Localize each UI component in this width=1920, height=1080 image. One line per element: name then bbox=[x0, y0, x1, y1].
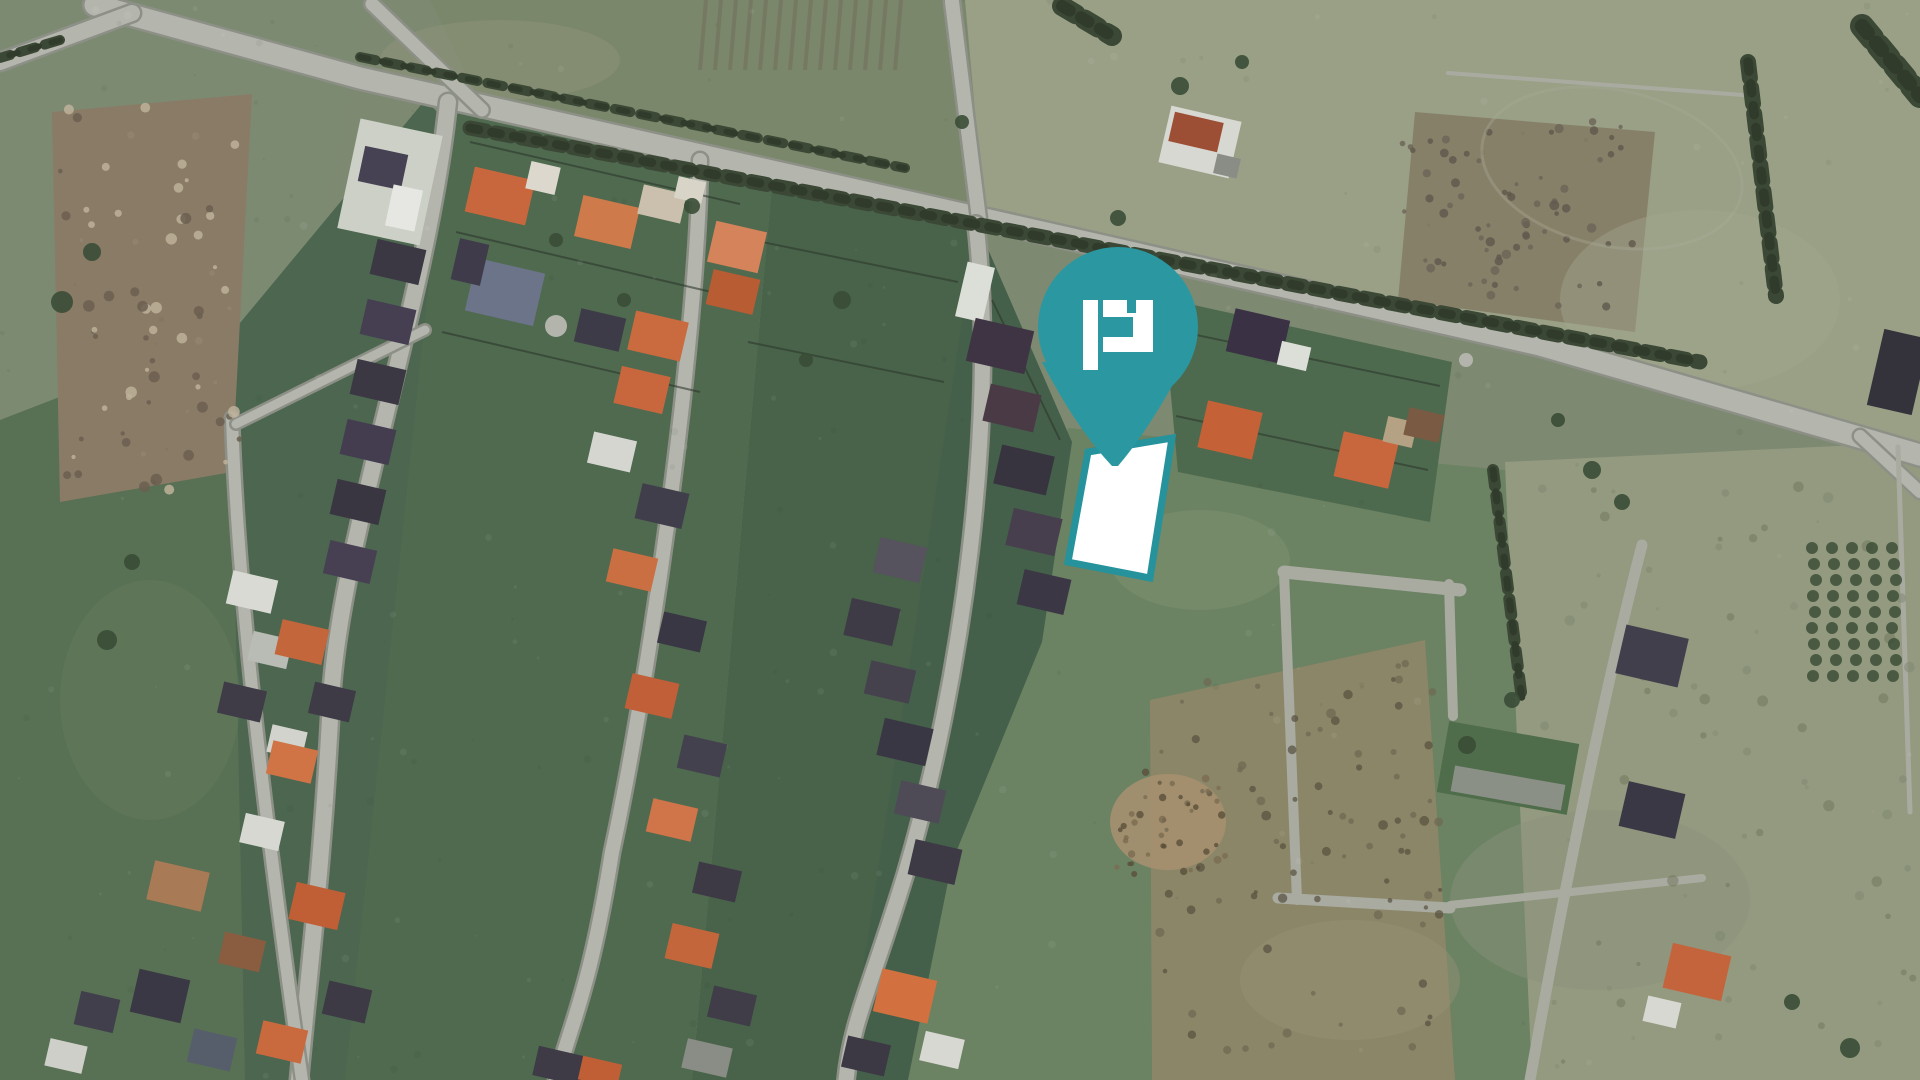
terrain-speckle bbox=[143, 335, 149, 341]
orchard-bush bbox=[1828, 638, 1840, 650]
terrain-speckle bbox=[1283, 1028, 1292, 1037]
terrain-speckle bbox=[840, 117, 845, 122]
terrain-speckle bbox=[1110, 53, 1118, 61]
terrain-speckle bbox=[1756, 829, 1763, 836]
terrain-speckle bbox=[817, 688, 824, 695]
terrain-speckle bbox=[1722, 489, 1730, 497]
p-logo-icon-cutout bbox=[1103, 317, 1133, 337]
terrain-speckle bbox=[1163, 969, 1168, 974]
terrain-speckle bbox=[1344, 192, 1347, 195]
terrain-speckle bbox=[1216, 898, 1222, 904]
terrain-speckle bbox=[0, 331, 5, 336]
terrain-speckle bbox=[1159, 833, 1165, 839]
terrain-speckle bbox=[1502, 250, 1511, 259]
terrain-speckle bbox=[1438, 888, 1442, 892]
terrain-speckle bbox=[632, 1041, 634, 1043]
terrain-speckle bbox=[1700, 694, 1711, 705]
terrain-speckle bbox=[1290, 869, 1297, 876]
terrain-speckle bbox=[1540, 722, 1549, 731]
terrain-speckle bbox=[1521, 1021, 1525, 1025]
terrain-speckle bbox=[400, 748, 407, 755]
orchard-bush bbox=[1827, 590, 1839, 602]
terrain-speckle bbox=[513, 639, 518, 644]
terrain-speckle bbox=[1395, 817, 1401, 823]
terrain-speckle bbox=[314, 1047, 317, 1050]
terrain-speckle bbox=[366, 798, 373, 805]
tree bbox=[51, 291, 73, 313]
terrain-speckle bbox=[1242, 1045, 1249, 1052]
orchard-bush bbox=[1888, 638, 1900, 650]
terrain-speckle bbox=[18, 777, 20, 779]
terrain-speckle bbox=[184, 664, 190, 670]
terrain-speckle bbox=[227, 306, 231, 310]
terrain-speckle bbox=[1486, 223, 1490, 227]
terrain-speckle bbox=[1739, 281, 1743, 285]
terrain-speckle bbox=[1646, 567, 1652, 573]
terrain-speckle bbox=[851, 872, 859, 880]
terrain-speckle bbox=[647, 881, 654, 888]
terrain-speckle bbox=[1481, 278, 1487, 284]
terrain-speckle bbox=[775, 246, 779, 250]
terrain-speckle bbox=[1331, 733, 1337, 739]
orchard-bush bbox=[1867, 590, 1879, 602]
terrain-speckle bbox=[1468, 282, 1473, 287]
orchard-bush bbox=[1870, 574, 1882, 586]
terrain-speckle bbox=[1274, 839, 1279, 844]
terrain-speckle bbox=[1790, 602, 1798, 610]
terrain-speckle bbox=[514, 585, 517, 588]
terrain-speckle bbox=[1315, 782, 1323, 790]
terrain-speckle bbox=[1297, 667, 1300, 670]
terrain-speckle bbox=[1180, 868, 1187, 875]
terrain-speckle bbox=[58, 169, 63, 174]
terrain-speckle bbox=[192, 372, 200, 380]
terrain-speckle bbox=[1784, 116, 1788, 120]
terrain-speckle bbox=[1384, 878, 1389, 883]
terrain-speckle bbox=[342, 955, 350, 963]
terrain-speckle bbox=[1419, 816, 1429, 826]
tree bbox=[1110, 210, 1126, 226]
terrain-speckle bbox=[192, 132, 200, 140]
orchard-bush bbox=[1847, 670, 1859, 682]
terrain-speckle bbox=[216, 417, 225, 426]
terrain-speckle bbox=[297, 492, 303, 498]
terrain-speckle bbox=[1322, 847, 1331, 856]
terrain-speckle bbox=[552, 196, 558, 202]
terrain-speckle bbox=[1754, 630, 1758, 634]
terrain-speckle bbox=[80, 238, 84, 242]
terrain-speckle bbox=[1491, 266, 1500, 275]
terrain-speckle bbox=[1093, 821, 1096, 824]
terrain-speckle bbox=[1741, 161, 1744, 164]
terrain-speckle bbox=[68, 935, 73, 940]
orchard-bush bbox=[1867, 670, 1879, 682]
terrain-speckle bbox=[1882, 810, 1892, 820]
terrain-speckle bbox=[1522, 232, 1530, 240]
tree bbox=[955, 115, 969, 129]
terrain-speckle bbox=[1575, 463, 1579, 467]
orchard-bush bbox=[1888, 558, 1900, 570]
terrain-speckle bbox=[1391, 749, 1397, 755]
terrain-speckle bbox=[1257, 797, 1266, 806]
terrain-speckle bbox=[74, 470, 82, 478]
terrain-speckle bbox=[164, 949, 166, 951]
terrain-speckle bbox=[1743, 748, 1751, 756]
orchard-bush bbox=[1829, 606, 1841, 618]
terrain-speckle bbox=[1790, 409, 1793, 412]
terrain-speckle bbox=[1597, 573, 1601, 577]
terrain-speckle bbox=[256, 395, 263, 402]
terrain-speckle bbox=[1597, 281, 1602, 286]
terrain-speckle bbox=[1427, 223, 1430, 226]
terrain-speckle bbox=[1159, 750, 1163, 754]
terrain-speckle bbox=[1423, 258, 1427, 262]
road-widening bbox=[545, 315, 567, 337]
orchard-bush bbox=[1850, 574, 1862, 586]
terrain-speckle bbox=[1203, 678, 1211, 686]
terrain-speckle bbox=[213, 381, 217, 385]
terrain-speckle bbox=[1458, 193, 1465, 200]
terrain-speckle bbox=[263, 158, 265, 160]
terrain-speckle bbox=[73, 113, 82, 122]
terrain-speckle bbox=[1600, 512, 1610, 522]
terrain-speckle bbox=[1507, 193, 1515, 201]
terrain-speckle bbox=[850, 340, 857, 347]
terrain-speckle bbox=[315, 45, 317, 47]
terrain-speckle bbox=[1455, 372, 1462, 379]
terrain-speckle bbox=[140, 103, 150, 113]
terrain-speckle bbox=[1339, 1023, 1343, 1027]
terrain-speckle bbox=[1885, 914, 1891, 920]
terrain-speckle bbox=[1143, 795, 1147, 799]
terrain-speckle bbox=[1128, 850, 1135, 857]
terrain-speckle bbox=[1424, 905, 1428, 909]
terrain-speckle bbox=[1414, 698, 1422, 706]
terrain-speckle bbox=[1057, 671, 1061, 675]
terrain-speckle bbox=[1355, 750, 1363, 758]
terrain-speckle bbox=[819, 868, 824, 873]
tree bbox=[549, 233, 563, 247]
terrain-speckle bbox=[1823, 492, 1834, 503]
road-widening bbox=[1459, 353, 1473, 367]
orchard-bush bbox=[1850, 654, 1862, 666]
terrain-speckle bbox=[124, 11, 132, 19]
terrain-speckle bbox=[1218, 811, 1225, 818]
terrain-speckle bbox=[164, 485, 174, 495]
orchard-bush bbox=[1868, 638, 1880, 650]
terrain-speckle bbox=[1423, 169, 1431, 177]
terrain-speckle bbox=[1567, 838, 1570, 841]
orchard-bush bbox=[1826, 542, 1838, 554]
terrain-speckle bbox=[1514, 286, 1519, 291]
terrain-speckle bbox=[1441, 261, 1446, 266]
terrain-speckle bbox=[174, 183, 184, 193]
terrain-speckle bbox=[83, 300, 95, 312]
terrain-speckle bbox=[1343, 690, 1352, 699]
terrain-speckle bbox=[159, 317, 164, 322]
terrain-speckle bbox=[1388, 898, 1393, 903]
tree bbox=[124, 554, 140, 570]
terrain-speckle bbox=[1261, 811, 1271, 821]
terrain-speckle bbox=[1193, 804, 1199, 810]
terrain-speckle bbox=[1440, 149, 1449, 158]
terrain-speckle bbox=[1178, 795, 1182, 799]
tree bbox=[617, 293, 631, 307]
terrain-speckle bbox=[558, 66, 564, 72]
orchard-bush bbox=[1869, 606, 1881, 618]
terrain-speckle bbox=[145, 368, 149, 372]
terrain-speckle bbox=[1761, 524, 1768, 531]
terrain-speckle bbox=[1590, 126, 1599, 135]
orchard-bush bbox=[1886, 622, 1898, 634]
terrain-speckle bbox=[1315, 14, 1320, 19]
field-lane bbox=[1449, 584, 1453, 716]
terrain-speckle bbox=[1872, 876, 1883, 887]
terrain-speckle bbox=[315, 374, 321, 380]
terrain-speckle bbox=[1328, 810, 1333, 815]
terrain-speckle bbox=[194, 231, 203, 240]
terrain-speckle bbox=[1542, 229, 1547, 234]
terrain-speckle bbox=[936, 558, 941, 563]
terrain-speckle bbox=[1176, 839, 1183, 846]
terrain-speckle bbox=[1159, 794, 1166, 801]
tree bbox=[1840, 1038, 1860, 1058]
tree bbox=[1235, 55, 1249, 69]
terrain-speckle bbox=[300, 222, 308, 230]
terrain-speckle bbox=[746, 1039, 754, 1047]
terrain-speckle bbox=[1212, 683, 1219, 690]
terrain-speckle bbox=[1805, 785, 1809, 789]
terrain-speckle bbox=[1359, 768, 1361, 770]
terrain-speckle bbox=[1515, 182, 1519, 186]
terrain-speckle bbox=[1359, 682, 1364, 687]
tree bbox=[1614, 494, 1630, 510]
terrain-speckle bbox=[411, 759, 417, 765]
terrain-speckle bbox=[1359, 1048, 1363, 1052]
orchard-bush bbox=[1847, 590, 1859, 602]
terrain-speckle bbox=[1374, 910, 1383, 919]
terrain-speckle bbox=[1088, 58, 1095, 65]
terrain-speckle bbox=[1726, 883, 1730, 887]
orchard-bush bbox=[1808, 558, 1820, 570]
terrain-speckle bbox=[1158, 781, 1162, 785]
terrain-speckle bbox=[1555, 1064, 1560, 1069]
terrain-speckle bbox=[508, 44, 513, 49]
terrain-speckle bbox=[583, 755, 591, 763]
terrain-speckle bbox=[1136, 811, 1143, 818]
terrain-speckle bbox=[1400, 141, 1406, 147]
terrain-speckle bbox=[986, 613, 992, 619]
terrain-speckle bbox=[995, 986, 998, 989]
terrain-speckle bbox=[1539, 176, 1543, 180]
terrain-speckle bbox=[1715, 931, 1725, 941]
terrain-speckle bbox=[23, 715, 29, 721]
terrain-speckle bbox=[1538, 485, 1546, 493]
terrain-speckle bbox=[1214, 799, 1219, 804]
terrain-speckle bbox=[561, 978, 564, 981]
terrain-speckle bbox=[1602, 302, 1610, 310]
tree bbox=[684, 198, 700, 214]
terrain-speckle bbox=[151, 302, 162, 313]
orchard-bush bbox=[1828, 558, 1840, 570]
terrain-speckle bbox=[830, 649, 838, 657]
terrain-speckle bbox=[1296, 858, 1303, 865]
tree bbox=[1171, 77, 1189, 95]
terrain-speckle bbox=[1223, 1046, 1231, 1054]
terrain-speckle bbox=[1700, 732, 1706, 738]
terrain-speckle bbox=[197, 402, 208, 413]
terrain-speckle bbox=[231, 140, 240, 149]
terrain-speckle bbox=[1442, 136, 1450, 144]
terrain-speckle bbox=[165, 448, 168, 451]
terrain-speckle bbox=[48, 686, 54, 692]
terrain-speckle bbox=[414, 1051, 421, 1058]
terrain-speckle bbox=[786, 679, 790, 683]
terrain-speckle bbox=[475, 935, 477, 937]
terrain-speckle bbox=[1432, 14, 1437, 19]
terrain-speckle bbox=[1129, 861, 1134, 866]
terrain-speckle bbox=[1619, 125, 1623, 129]
terrain-speckle bbox=[149, 371, 160, 382]
orchard-bush bbox=[1887, 590, 1899, 602]
terrain-speckle bbox=[1878, 693, 1888, 703]
terrain-speckle bbox=[618, 591, 623, 596]
satellite-map-canvas[interactable] bbox=[0, 0, 1920, 1080]
terrain-speckle bbox=[92, 6, 99, 13]
terrain-speckle bbox=[1205, 789, 1210, 794]
terrain-speckle bbox=[1521, 132, 1524, 135]
terrain-speckle bbox=[1715, 544, 1722, 551]
terrain-speckle bbox=[1358, 500, 1364, 506]
terrain-speckle bbox=[1155, 928, 1164, 937]
terrain-speckle bbox=[206, 205, 213, 212]
terrain-speckle bbox=[197, 313, 203, 319]
terrain-speckle bbox=[353, 404, 357, 408]
terrain-speckle bbox=[1188, 1010, 1196, 1018]
terrain-speckle bbox=[1480, 98, 1487, 105]
terrain-speckle bbox=[1311, 991, 1316, 996]
terrain-speckle bbox=[652, 276, 655, 279]
terrain-mottle bbox=[1110, 774, 1226, 870]
terrain-speckle bbox=[771, 395, 776, 400]
terrain-speckle bbox=[1534, 200, 1541, 207]
terrain-speckle bbox=[1397, 1007, 1406, 1016]
terrain-speckle bbox=[472, 739, 474, 741]
terrain-speckle bbox=[1142, 769, 1149, 776]
orchard-bush bbox=[1889, 606, 1901, 618]
terrain-speckle bbox=[1608, 151, 1615, 158]
terrain-speckle bbox=[1419, 979, 1427, 987]
terrain-speckle bbox=[1050, 851, 1057, 858]
terrain-speckle bbox=[485, 534, 492, 541]
terrain-speckle bbox=[728, 918, 731, 921]
terrain-speckle bbox=[1199, 56, 1203, 60]
terrain-speckle bbox=[284, 216, 291, 223]
orchard-bush bbox=[1866, 542, 1878, 554]
terrain-speckle bbox=[549, 275, 555, 281]
terrain-speckle bbox=[1434, 258, 1441, 265]
terrain-speckle bbox=[371, 737, 374, 740]
terrain-speckle bbox=[1273, 716, 1281, 724]
terrain-speckle bbox=[117, 21, 122, 26]
terrain-speckle bbox=[1425, 1020, 1431, 1026]
terrain-speckle bbox=[1251, 893, 1258, 900]
terrain-speckle bbox=[830, 542, 837, 549]
terrain-speckle bbox=[1314, 896, 1321, 903]
terrain-speckle bbox=[195, 384, 200, 389]
terrain-speckle bbox=[127, 986, 134, 993]
terrain-speckle bbox=[1348, 818, 1354, 824]
terrain-speckle bbox=[926, 661, 931, 666]
terrain-speckle bbox=[1492, 282, 1498, 288]
terrain-speckle bbox=[768, 594, 770, 596]
terrain-speckle bbox=[1552, 1000, 1557, 1005]
terrain-speckle bbox=[149, 326, 157, 334]
terrain-speckle bbox=[1549, 200, 1559, 210]
terrain-speckle bbox=[395, 917, 401, 923]
terrain-speckle bbox=[1424, 741, 1432, 749]
terrain-speckle bbox=[527, 978, 531, 982]
terrain-speckle bbox=[166, 233, 177, 244]
terrain-speckle bbox=[1742, 666, 1751, 675]
terrain-speckle bbox=[130, 287, 139, 296]
terrain-speckle bbox=[882, 323, 886, 327]
p-logo-icon-cutout bbox=[1127, 300, 1136, 313]
orchard-bush bbox=[1848, 638, 1860, 650]
terrain-speckle bbox=[1409, 1043, 1417, 1051]
terrain-speckle bbox=[149, 479, 156, 486]
terrain-speckle bbox=[960, 418, 964, 422]
terrain-speckle bbox=[1165, 890, 1173, 898]
orchard-bush bbox=[1810, 574, 1822, 586]
orchard-bush bbox=[1848, 558, 1860, 570]
terrain-speckle bbox=[1816, 520, 1819, 523]
orchard-bush bbox=[1866, 622, 1878, 634]
terrain-speckle bbox=[1373, 246, 1381, 254]
terrain-speckle bbox=[1742, 834, 1747, 839]
terrain-speckle bbox=[71, 455, 75, 459]
terrain-speckle bbox=[141, 451, 146, 456]
orchard-bush bbox=[1806, 542, 1818, 554]
terrain-speckle bbox=[1479, 235, 1484, 240]
terrain-speckle bbox=[1901, 969, 1907, 975]
terrain-speckle bbox=[1607, 986, 1612, 991]
orchard-bush bbox=[1809, 606, 1821, 618]
terrain-speckle bbox=[1718, 537, 1723, 542]
terrain-speckle bbox=[1874, 1040, 1881, 1047]
terrain-speckle bbox=[1428, 799, 1433, 804]
terrain-speckle bbox=[1249, 786, 1256, 793]
terrain-speckle bbox=[1410, 148, 1416, 154]
orchard-bush bbox=[1870, 654, 1882, 666]
terrain-speckle bbox=[1777, 554, 1781, 558]
terrain-speckle bbox=[1192, 735, 1200, 743]
terrain-speckle bbox=[1712, 730, 1718, 736]
terrain-speckle bbox=[206, 212, 214, 220]
terrain-speckle bbox=[286, 805, 293, 812]
terrain-speckle bbox=[1439, 209, 1448, 218]
terrain-speckle bbox=[1396, 663, 1402, 669]
terrain-speckle bbox=[1189, 809, 1193, 813]
terrain-speckle bbox=[1394, 774, 1400, 780]
terrain-speckle bbox=[1159, 816, 1166, 823]
terrain-speckle bbox=[1170, 781, 1175, 786]
terrain-speckle bbox=[1400, 833, 1405, 838]
terrain-speckle bbox=[1366, 843, 1373, 850]
terrain-speckle bbox=[1326, 709, 1336, 719]
terrain-speckle bbox=[1226, 306, 1231, 311]
terrain-speckle bbox=[1485, 383, 1490, 388]
